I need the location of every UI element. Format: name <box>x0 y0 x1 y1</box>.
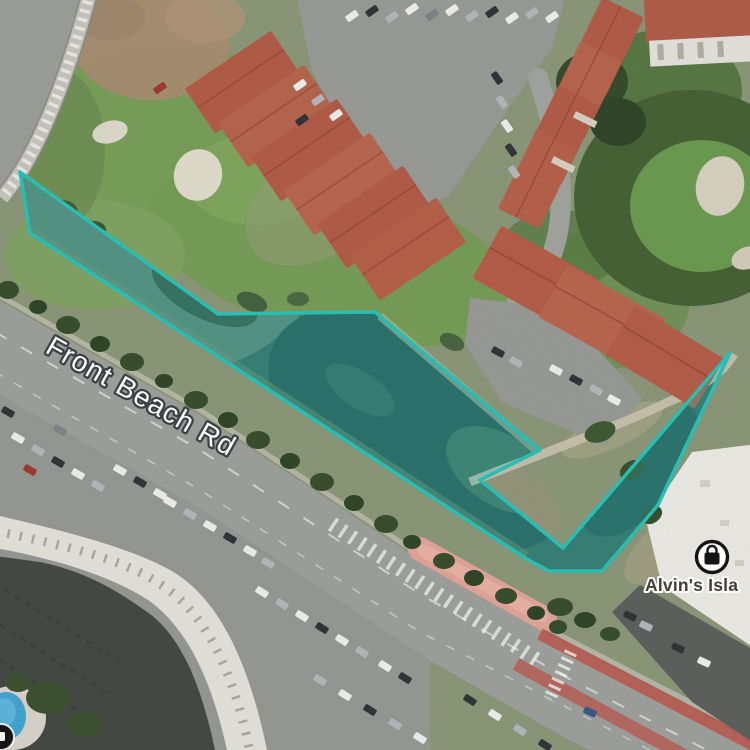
satellite-map-canvas[interactable]: Front Beach Rd Alvin's Isla <box>0 0 750 750</box>
map-viewport[interactable]: Front Beach Rd Alvin's Isla <box>0 0 750 750</box>
poi-label-text[interactable]: Alvin's Isla <box>645 575 738 595</box>
shopping-bag-icon[interactable] <box>697 542 728 573</box>
